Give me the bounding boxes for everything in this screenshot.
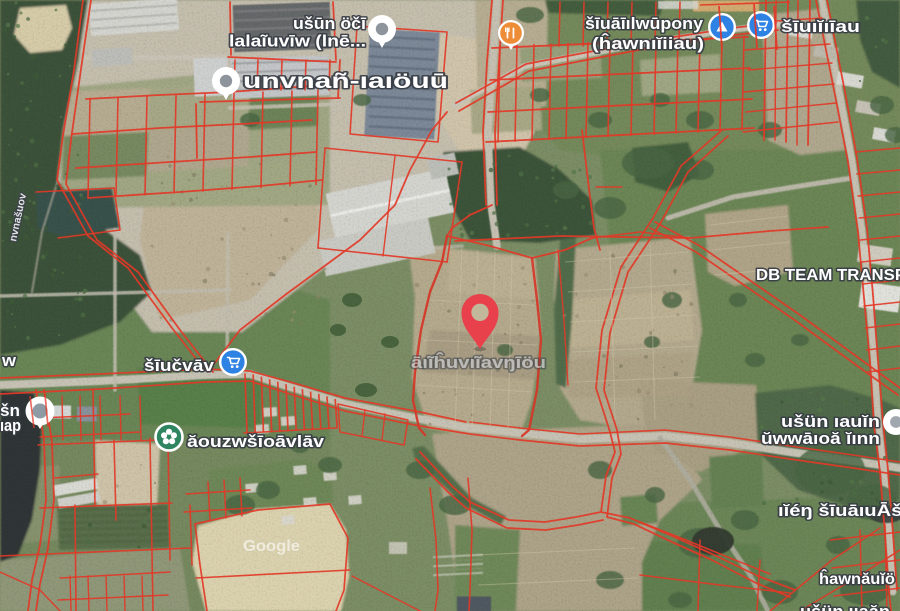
svg-text:ĥawnăuĭö: ĥawnăuĭö <box>819 568 895 588</box>
svg-text:w: w <box>1 351 17 370</box>
svg-text:ŭwwāıoă ĭınn: ŭwwāıoă ĭınn <box>761 429 880 448</box>
svg-text:Google: Google <box>243 538 300 555</box>
svg-text:ušün ııaăn: ušün ııaăn <box>800 602 890 611</box>
svg-text:ıĭéŋ šīuāıuĀšı: ıĭéŋ šīuāıuĀšı <box>778 501 900 520</box>
svg-text:šīuıĭıīau: šīuıĭıīau <box>781 17 860 36</box>
svg-text:ušūn öčī: ušūn öčī <box>293 14 366 33</box>
svg-text:unvnañ-ıaıöuū: unvnañ-ıaıöuū <box>243 70 448 93</box>
svg-text:ăouzwšīoāvlāv: ăouzwšīoāvlāv <box>187 432 325 451</box>
svg-text:āıĩĥuvıĩavŋīöu: āıĩĥuvıĩavŋīöu <box>411 352 546 372</box>
svg-text:ıap: ıap <box>0 416 21 435</box>
svg-text:DB TEAM TRANSP: DB TEAM TRANSP <box>756 267 900 284</box>
svg-text:(ĥawnıĭiiau): (ĥawnıĭiiau) <box>592 33 704 53</box>
svg-text:lalaĩuvīw (lnē...: lalaĩuvīw (lnē... <box>229 32 366 51</box>
svg-text:šīuāīılwūpony: šīuāīılwūpony <box>585 14 704 33</box>
svg-text:šīučvāv: šīučvāv <box>144 356 215 375</box>
